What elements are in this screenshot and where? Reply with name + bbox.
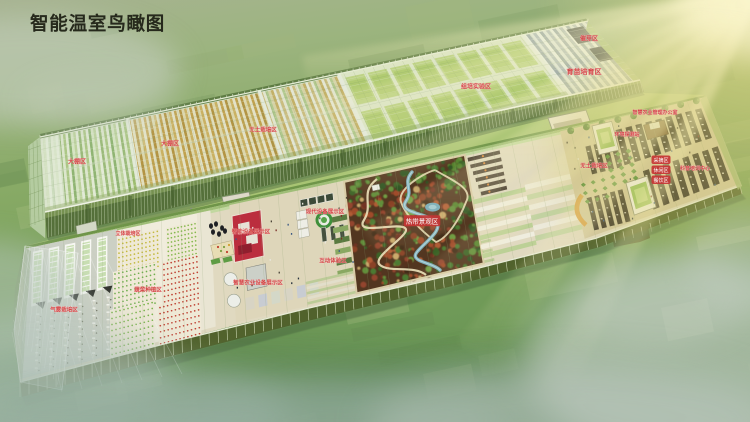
- svg-text:组培实验区: 组培实验区: [461, 83, 491, 91]
- svg-text:采摘区: 采摘区: [653, 157, 668, 164]
- svg-text:催芽区: 催芽区: [580, 35, 598, 43]
- svg-text:热带景观区: 热带景观区: [406, 217, 439, 226]
- svg-text:大棚区: 大棚区: [68, 158, 86, 166]
- svg-text:无土栽培区: 无土栽培区: [248, 125, 277, 133]
- svg-text:大棚区: 大棚区: [161, 140, 179, 148]
- svg-text:无土栽培区: 无土栽培区: [579, 161, 608, 169]
- svg-text:现代设备展示区: 现代设备展示区: [306, 207, 345, 215]
- svg-text:育苗培育区: 育苗培育区: [567, 67, 602, 76]
- svg-text:气雾栽培区: 气雾栽培区: [49, 305, 78, 313]
- svg-text:休闲区: 休闲区: [653, 167, 668, 174]
- svg-text:环境探测站: 环境探测站: [614, 131, 639, 138]
- svg-text:智能温室鸟瞰图: 智能温室鸟瞰图: [30, 13, 165, 34]
- svg-text:立体栽培区: 立体栽培区: [115, 230, 140, 237]
- svg-text:蔬菜种植区: 蔬菜种植区: [134, 285, 162, 293]
- svg-text:智慧农业管理办公室: 智慧农业管理办公室: [632, 109, 677, 116]
- svg-text:互动体验区: 互动体验区: [319, 256, 347, 264]
- svg-text:科普培训中心: 科普培训中心: [679, 165, 710, 172]
- svg-text:智慧农业设备展示区: 智慧农业设备展示区: [233, 278, 283, 286]
- svg-text:智能设备展示区: 智能设备展示区: [232, 227, 271, 235]
- svg-text:餐饮区: 餐饮区: [653, 177, 668, 184]
